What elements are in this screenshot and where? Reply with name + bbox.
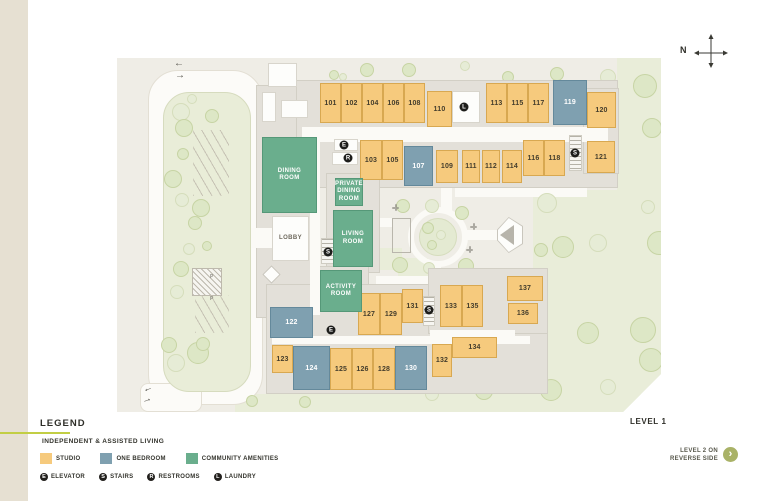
legend: LEGEND INDEPENDENT & ASSISTED LIVING STU… <box>0 418 320 481</box>
planter-icon <box>392 204 399 211</box>
room-121: 121 <box>587 141 615 173</box>
lobby-label: LOBBY <box>279 235 302 243</box>
tree-icon <box>246 395 258 407</box>
legend-type-label: ONE BEDROOM <box>116 456 165 462</box>
map-marker-elevator-north: E <box>340 141 349 150</box>
tree-icon <box>427 240 437 250</box>
tree-icon <box>329 70 339 80</box>
legend-underline <box>0 432 70 434</box>
service-room <box>262 92 276 122</box>
activity-room-label: ACTIVITY ROOM <box>325 284 357 299</box>
legend-title: LEGEND <box>40 418 320 429</box>
chevron-right-icon: › <box>729 449 733 460</box>
courtyard-path <box>464 230 500 240</box>
tree-icon <box>177 148 189 160</box>
room-109: 109 <box>436 150 458 183</box>
legend-facility-icons: EELEVATORSSTAIRSRRESTROOMSLLAUNDRY <box>40 473 320 481</box>
room-123: 123 <box>272 345 293 373</box>
community-swatch <box>186 453 198 464</box>
tree-icon <box>167 354 185 372</box>
tree-icon <box>360 63 374 77</box>
studio-swatch <box>40 453 52 464</box>
room-119: 119 <box>553 80 587 125</box>
tree-icon <box>647 231 671 255</box>
room-114: 114 <box>502 150 522 183</box>
map-marker-restrooms-north: R <box>344 154 353 163</box>
legend-type-label: COMMUNITY AMENITIES <box>202 456 279 462</box>
accessible-parking-hatch <box>192 268 222 296</box>
tree-icon <box>534 243 548 257</box>
tree-icon <box>183 243 195 255</box>
planter-icon <box>470 223 477 230</box>
room-131: 131 <box>402 289 423 323</box>
compass-north-label: N <box>680 45 687 55</box>
tree-icon <box>642 118 662 138</box>
tree-icon <box>175 119 193 137</box>
room-107: 107 <box>404 146 433 186</box>
tree-icon <box>192 199 210 217</box>
room-133: 133 <box>440 285 462 327</box>
room-132: 132 <box>432 344 452 377</box>
legend-subtitle: INDEPENDENT & ASSISTED LIVING <box>42 438 320 445</box>
level2-arrow-button[interactable]: › <box>723 447 738 462</box>
room-136: 136 <box>508 303 538 324</box>
room-110: 110 <box>427 91 452 127</box>
tree-icon <box>641 200 655 214</box>
service-room <box>281 100 308 118</box>
traffic-arrow-right-icon: → <box>175 71 185 81</box>
tree-icon <box>460 61 470 71</box>
tree-icon <box>455 206 469 220</box>
compass-cross-icon <box>694 34 728 68</box>
private-dining-room: PRIVATE DINING ROOM <box>335 178 363 206</box>
tree-icon <box>550 67 564 81</box>
dining-room-label: DINING ROOM <box>274 168 306 183</box>
tree-icon <box>630 317 656 343</box>
legend-icon-laundry: LLAUNDRY <box>214 473 256 481</box>
map-marker-stairs-lobby: S <box>324 248 333 257</box>
tree-icon <box>205 109 219 123</box>
room-135: 135 <box>462 285 483 327</box>
traffic-arrow-left-icon: ← <box>174 59 184 69</box>
tree-icon <box>392 257 408 273</box>
room-115: 115 <box>507 83 528 123</box>
room-137: 137 <box>507 276 543 301</box>
room-125: 125 <box>330 348 352 390</box>
tree-icon <box>187 94 197 104</box>
room-118: 118 <box>544 140 565 176</box>
tree-icon <box>537 193 557 213</box>
map-marker-stairs-south: S <box>425 306 434 315</box>
tree-icon <box>600 379 616 395</box>
accessible-parking-symbol: P <box>210 274 213 280</box>
tree-icon <box>633 74 657 98</box>
tree-icon <box>589 234 607 252</box>
tree-icon <box>425 199 439 213</box>
tree-icon <box>173 261 189 277</box>
tree-icon <box>188 216 202 230</box>
tree-icon <box>202 241 212 251</box>
activity-room: ACTIVITY ROOM <box>320 270 362 312</box>
tree-icon <box>577 322 599 344</box>
level2-note-line1: LEVEL 2 ON <box>638 447 718 455</box>
level2-note: LEVEL 2 ON REVERSE SIDE <box>638 447 718 463</box>
one_bedroom-swatch <box>100 453 112 464</box>
legend-type-community: COMMUNITY AMENITIES <box>186 453 279 464</box>
room-128: 128 <box>373 348 395 390</box>
entrance-walk <box>251 228 272 248</box>
room-101: 101 <box>320 83 341 123</box>
room-130: 130 <box>395 346 427 390</box>
tree-icon <box>196 337 210 351</box>
room-117: 117 <box>528 83 549 123</box>
room-113: 113 <box>486 83 507 123</box>
site-plan-map: P P ← → ← → 1011021031041051061071081091… <box>117 58 661 412</box>
legend-icon-label: RESTROOMS <box>158 474 199 480</box>
room-108: 108 <box>404 83 425 123</box>
room-112: 112 <box>482 150 500 183</box>
tree-icon <box>402 63 416 77</box>
tree-icon <box>175 193 189 207</box>
legend-icon-label: STAIRS <box>110 474 133 480</box>
stairs-icon: S <box>99 473 107 481</box>
tree-icon <box>299 396 311 408</box>
legend-type-one_bedroom: ONE BEDROOM <box>100 453 165 464</box>
compass: N <box>680 34 740 72</box>
legend-type-studio: STUDIO <box>40 453 80 464</box>
restrooms-icon: R <box>147 473 155 481</box>
legend-icon-restrooms: RRESTROOMS <box>147 473 199 481</box>
tree-icon <box>639 348 663 372</box>
room-129: 129 <box>380 293 402 335</box>
legend-type-label: STUDIO <box>56 456 80 462</box>
trellis-icon <box>392 218 411 253</box>
porte-cochere <box>268 63 297 87</box>
room-102: 102 <box>341 83 362 123</box>
elevator-icon: E <box>40 473 48 481</box>
room-104: 104 <box>362 83 383 123</box>
map-marker-stairs-east: S <box>571 149 580 158</box>
legend-icon-stairs: SSTAIRS <box>99 473 133 481</box>
map-marker-laundry-north: L <box>460 103 469 112</box>
tree-icon <box>164 170 182 188</box>
living-room: LIVING ROOM <box>333 210 373 267</box>
private-dining-room-label: PRIVATE DINING ROOM <box>335 181 363 204</box>
planter-icon <box>466 246 473 253</box>
tree-icon <box>552 236 574 258</box>
tree-icon <box>436 230 446 240</box>
legend-icon-elevator: EELEVATOR <box>40 473 85 481</box>
tree-icon <box>422 222 434 234</box>
room-116: 116 <box>523 140 544 176</box>
room-124: 124 <box>293 346 330 390</box>
living-room-label: LIVING ROOM <box>337 231 369 246</box>
room-105: 105 <box>382 140 403 180</box>
legend-icon-label: ELEVATOR <box>51 474 85 480</box>
room-103: 103 <box>360 140 382 180</box>
laundry-icon: L <box>214 473 222 481</box>
lobby: LOBBY <box>272 216 309 261</box>
room-111: 111 <box>462 150 480 183</box>
tree-icon <box>170 285 184 299</box>
room-120: 120 <box>587 92 616 128</box>
room-134: 134 <box>452 337 497 358</box>
dining-room: DINING ROOM <box>262 137 317 213</box>
legend-room-types: STUDIOONE BEDROOMCOMMUNITY AMENITIES <box>40 453 320 464</box>
accessible-parking-symbol: P <box>210 296 213 302</box>
room-126: 126 <box>352 348 373 390</box>
map-marker-elevator-south: E <box>327 326 336 335</box>
room-106: 106 <box>383 83 404 123</box>
legend-icon-label: LAUNDRY <box>225 474 256 480</box>
parking-stalls-north <box>193 130 229 196</box>
tree-icon <box>161 337 177 353</box>
room-122: 122 <box>270 307 313 338</box>
level2-note-line2: REVERSE SIDE <box>638 455 718 463</box>
gazebo-icon <box>497 217 523 253</box>
level-label: LEVEL 1 <box>630 417 667 426</box>
